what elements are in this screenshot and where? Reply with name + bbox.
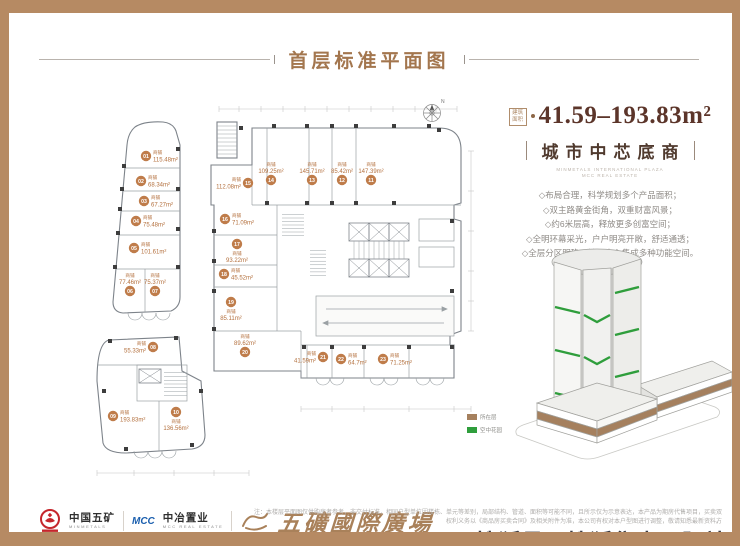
svg-text:商铺: 商铺 xyxy=(151,194,161,201)
svg-text:商铺: 商铺 xyxy=(226,308,236,315)
shop-unit-18: 18商铺45.52m² xyxy=(219,267,253,282)
svg-text:03: 03 xyxy=(141,199,147,205)
headline-row: 城市中芯底商 xyxy=(496,138,724,163)
svg-text:商铺: 商铺 xyxy=(148,174,158,181)
badge-dot xyxy=(531,114,535,118)
feature-item: ◇布局合理，科学规划多个产品面积； xyxy=(496,188,724,203)
svg-text:商铺: 商铺 xyxy=(232,176,242,183)
svg-text:07: 07 xyxy=(152,289,158,295)
area-row: 建筑面积 41.59–193.83m² xyxy=(496,101,724,131)
svg-text:77.46m²: 77.46m² xyxy=(119,280,141,286)
svg-text:85.42m²: 85.42m² xyxy=(331,169,353,175)
footer-divider xyxy=(231,511,232,531)
svg-text:115.48m²: 115.48m² xyxy=(153,158,178,164)
svg-text:64.7m²: 64.7m² xyxy=(348,361,367,367)
svg-text:13: 13 xyxy=(309,178,315,184)
legend: 所在层 空中花园 xyxy=(467,413,502,439)
title-row: 首层标准平面图 xyxy=(39,46,699,73)
svg-text:06: 06 xyxy=(127,289,133,295)
svg-text:商铺: 商铺 xyxy=(390,352,400,359)
svg-text:08: 08 xyxy=(150,345,156,351)
svg-text:商铺: 商铺 xyxy=(143,214,153,221)
svg-text:商铺: 商铺 xyxy=(171,418,181,425)
shop-unit-07: 07商铺75.37m² xyxy=(144,272,166,296)
headline: 城市中芯底商 xyxy=(535,138,686,163)
svg-text:N: N xyxy=(441,99,445,105)
shop-unit-09: 09商铺193.83m² xyxy=(108,409,146,424)
watermark-souhu: 搜狐号@搜狐焦点邵阳站 xyxy=(476,525,728,546)
svg-text:85.11m²: 85.11m² xyxy=(220,316,242,322)
svg-text:109.25m²: 109.25m² xyxy=(258,169,283,175)
svg-text:71.25m²: 71.25m² xyxy=(390,361,412,367)
svg-text:20: 20 xyxy=(242,350,248,356)
svg-text:112.08m²: 112.08m² xyxy=(216,185,241,191)
svg-text:商铺: 商铺 xyxy=(232,250,242,257)
subtitle-en-line2: MCC REAL ESTATE xyxy=(496,173,724,179)
svg-text:68.34m²: 68.34m² xyxy=(148,183,170,189)
page-title: 首层标准平面图 xyxy=(279,46,460,73)
svg-text:15: 15 xyxy=(245,181,251,187)
legend-item-sky-garden: 空中花园 xyxy=(467,426,502,434)
svg-text:14: 14 xyxy=(268,178,274,184)
shop-unit-03: 03商铺67.27m² xyxy=(139,194,173,209)
headline-bar-right xyxy=(694,141,695,160)
svg-text:02: 02 xyxy=(138,179,144,185)
svg-text:11: 11 xyxy=(368,178,374,184)
svg-text:22: 22 xyxy=(338,357,344,363)
area-badge: 建筑面积 xyxy=(509,108,527,126)
svg-text:71.09m²: 71.09m² xyxy=(232,221,254,227)
svg-text:10: 10 xyxy=(173,410,179,416)
headline-bar-left xyxy=(526,141,527,160)
svg-text:145.71m²: 145.71m² xyxy=(299,169,324,175)
shop-unit-23: 23商铺71.25m² xyxy=(378,352,412,367)
shop-unit-15: 15商铺112.08m² xyxy=(216,176,253,191)
svg-text:193.83m²: 193.83m² xyxy=(120,418,145,424)
svg-text:101.61m²: 101.61m² xyxy=(141,250,166,256)
shop-unit-01: 01商铺115.48m² xyxy=(141,149,178,164)
svg-text:商铺: 商铺 xyxy=(137,340,147,347)
svg-text:商铺: 商铺 xyxy=(232,212,242,219)
building-illustration xyxy=(487,245,737,463)
minmetals-text: 中国五矿 MINMETALS xyxy=(69,513,115,530)
shop-unit-10: 10商铺136.56m² xyxy=(163,407,188,432)
shop-unit-16: 16商铺71.09m² xyxy=(220,212,254,227)
shop-unit-04: 04商铺75.48m² xyxy=(131,214,165,229)
svg-text:商铺: 商铺 xyxy=(125,272,135,279)
legend-label-sky-garden: 空中花园 xyxy=(480,426,502,434)
svg-text:89.62m²: 89.62m² xyxy=(234,341,256,347)
shop-unit-20: 20商铺89.62m² xyxy=(234,333,256,357)
shop-unit-08: 08商铺55.33m² xyxy=(124,340,158,355)
title-cap-left xyxy=(274,55,275,64)
mcc-logo: MCC xyxy=(132,516,155,527)
shop-unit-17: 17商铺93.22m² xyxy=(226,239,248,264)
subtitle-en: MINMETALS INTERNATIONAL PLAZA MCC REAL E… xyxy=(496,167,724,179)
footer-divider xyxy=(123,511,124,531)
compass-icon: N xyxy=(424,99,446,122)
svg-text:商铺: 商铺 xyxy=(153,149,163,156)
floor-plan: N xyxy=(64,91,489,489)
info-panel: 建筑面积 41.59–193.83m² 城市中芯底商 MINMETALS INT… xyxy=(496,101,724,261)
mcc-cn: 中冶置业 xyxy=(163,513,224,524)
minmetals-logo xyxy=(39,509,61,533)
legend-item-current-floor: 所在层 xyxy=(467,413,502,421)
svg-text:商铺: 商铺 xyxy=(337,161,347,168)
area-range: 41.59–193.83m² xyxy=(539,101,712,131)
feature-item: ◇全明环幕采光，户户明亮开敞，舒适通透； xyxy=(496,232,724,247)
svg-text:商铺: 商铺 xyxy=(240,333,250,340)
svg-text:55.33m²: 55.33m² xyxy=(124,349,146,355)
svg-text:75.37m²: 75.37m² xyxy=(144,280,166,286)
svg-text:23: 23 xyxy=(380,357,386,363)
shop-unit-14: 14商铺109.25m² xyxy=(258,161,283,185)
title-line-right xyxy=(469,59,700,60)
svg-text:01: 01 xyxy=(143,154,149,160)
svg-text:商铺: 商铺 xyxy=(366,161,376,168)
svg-text:41.59m²: 41.59m² xyxy=(294,359,316,365)
svg-text:18: 18 xyxy=(221,272,227,278)
feature-item: ◇双主路黄金街角，双重财富风景； xyxy=(496,203,724,218)
mcc-en: MCC REAL ESTATE xyxy=(163,525,224,529)
svg-text:商铺: 商铺 xyxy=(266,161,276,168)
svg-text:136.56m²: 136.56m² xyxy=(163,426,188,432)
flyer-page: 首层标准平面图 N xyxy=(0,0,740,546)
svg-text:21: 21 xyxy=(320,355,326,361)
svg-text:商铺: 商铺 xyxy=(231,267,241,274)
shop-labels: 01商铺115.48m²02商铺68.34m²03商铺67.27m²04商铺75… xyxy=(108,149,412,432)
svg-text:商铺: 商铺 xyxy=(120,409,130,416)
svg-text:17: 17 xyxy=(234,242,240,248)
feature-item: ◇约6米层高，释放更多创富空间； xyxy=(496,217,724,232)
svg-text:05: 05 xyxy=(131,246,137,252)
svg-text:09: 09 xyxy=(110,414,116,420)
legend-swatch-current-floor xyxy=(467,414,477,420)
mcc-text: 中冶置业 MCC REAL ESTATE xyxy=(163,513,224,530)
svg-text:19: 19 xyxy=(228,300,234,306)
shop-unit-02: 02商铺68.34m² xyxy=(136,174,170,189)
minmetals-cn: 中国五矿 xyxy=(69,513,115,524)
svg-text:04: 04 xyxy=(133,219,139,225)
shop-unit-19: 19商铺85.11m² xyxy=(220,297,242,322)
svg-text:12: 12 xyxy=(339,178,345,184)
svg-text:商铺: 商铺 xyxy=(307,350,317,357)
legend-swatch-sky-garden xyxy=(467,427,477,433)
svg-text:67.27m²: 67.27m² xyxy=(151,203,173,209)
svg-text:商铺: 商铺 xyxy=(150,272,160,279)
legend-label-current-floor: 所在层 xyxy=(480,413,497,421)
title-line-left xyxy=(39,59,270,60)
svg-text:商铺: 商铺 xyxy=(348,352,358,359)
floor-plan-svg: N xyxy=(64,91,489,489)
shop-unit-12: 12商铺85.42m² xyxy=(331,161,353,185)
svg-text:商铺: 商铺 xyxy=(141,241,151,248)
minmetals-en: MINMETALS xyxy=(69,525,115,529)
svg-text:45.52m²: 45.52m² xyxy=(231,276,253,282)
svg-text:16: 16 xyxy=(222,217,228,223)
shop-unit-06: 06商铺77.46m² xyxy=(119,272,141,296)
shop-unit-21: 21商铺41.59m² xyxy=(294,350,328,365)
shop-unit-05: 05商铺101.61m² xyxy=(129,241,167,256)
shop-unit-11: 11商铺147.39m² xyxy=(358,161,383,185)
shop-unit-13: 13商铺145.71m² xyxy=(299,161,324,185)
svg-text:商铺: 商铺 xyxy=(307,161,317,168)
svg-text:75.48m²: 75.48m² xyxy=(143,223,165,229)
shop-unit-22: 22商铺64.7m² xyxy=(336,352,367,367)
title-cap-right xyxy=(464,55,465,64)
svg-text:93.22m²: 93.22m² xyxy=(226,258,248,264)
svg-text:147.39m²: 147.39m² xyxy=(358,169,383,175)
